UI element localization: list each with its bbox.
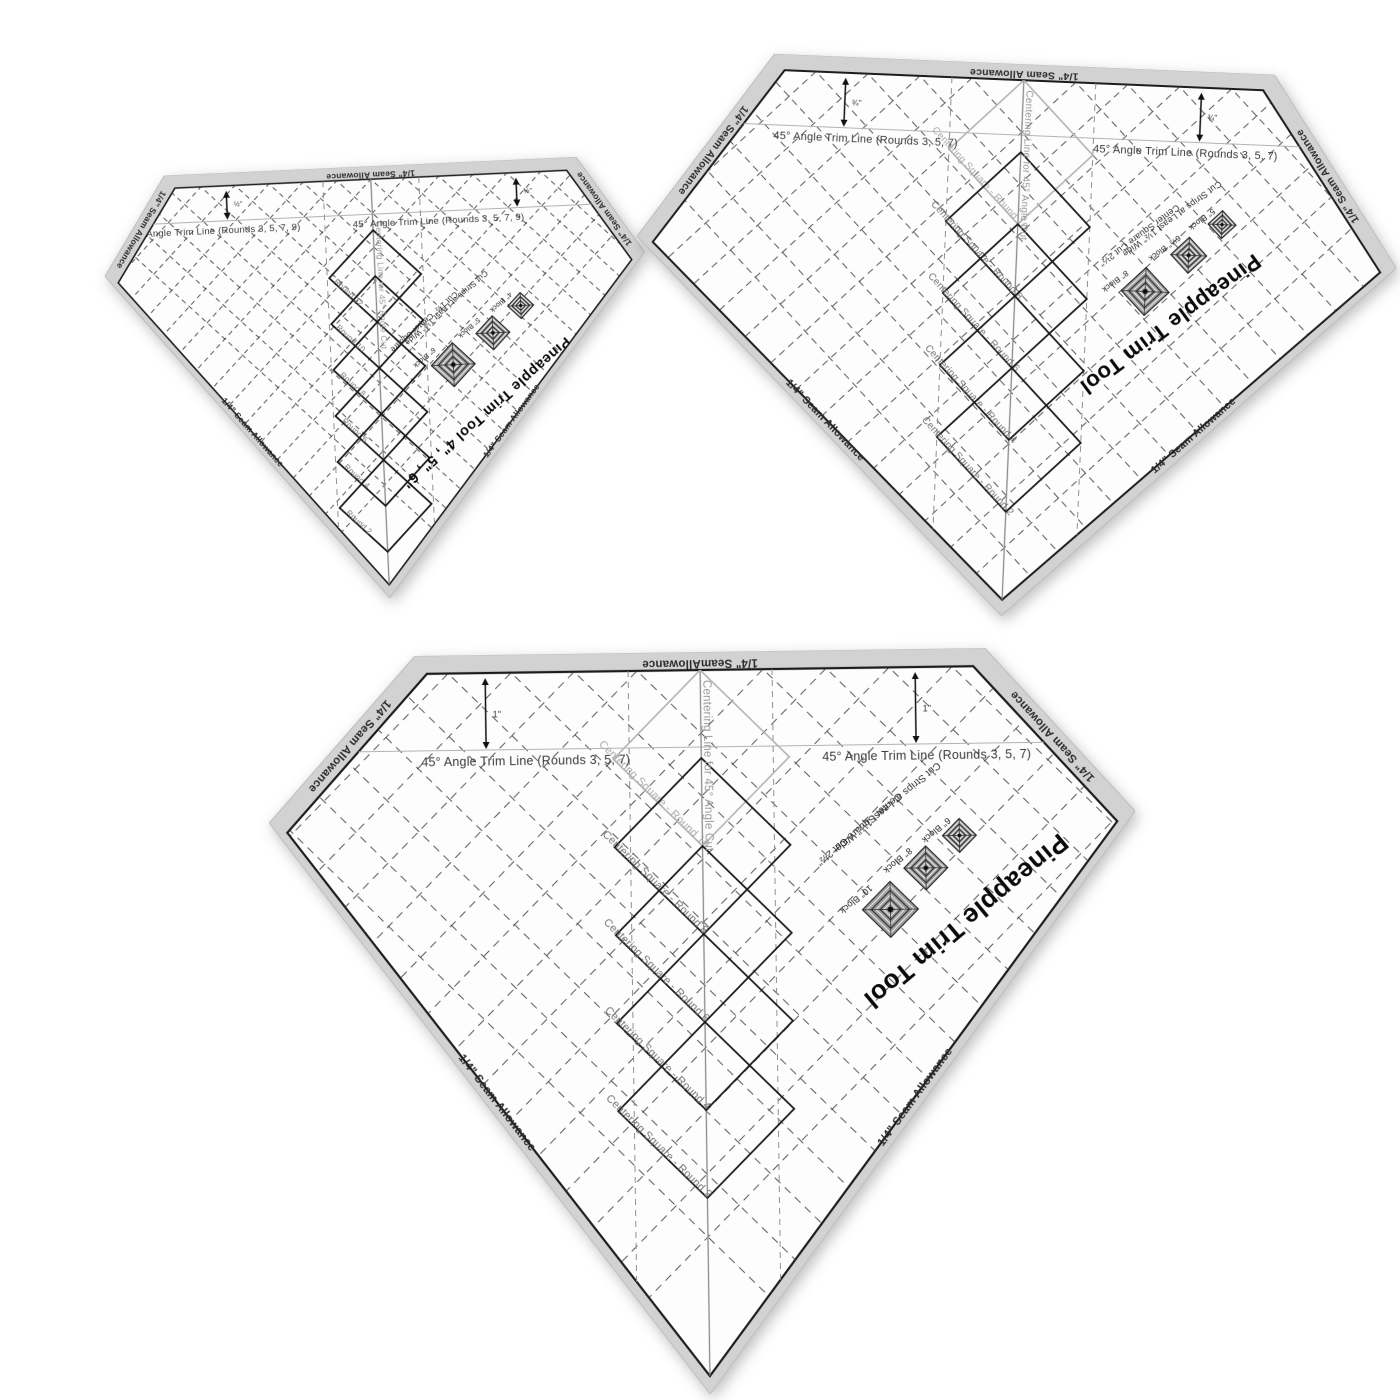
ruler-large-graphic: Centering Square - Round 10Centering Squ…: [267, 646, 1143, 1400]
trim-height-label: 1": [923, 704, 932, 714]
trim-height-label: 1": [493, 710, 502, 720]
trim-height-label: ¾": [852, 98, 862, 107]
trim-height-arrow: [915, 675, 916, 740]
trim-height-label: ¾": [1207, 113, 1217, 122]
angle-trim-line-label-right: 45° Angle Trim Line (Rounds 3, 5, 7): [822, 747, 1031, 764]
trim-height-label: ½": [523, 187, 532, 195]
product-photo: Round 12Round 10Round 8Round 6Round 4Rou…: [0, 0, 1400, 1400]
ruler-medium-graphic: Centering Square - Round 10Centering Squ…: [622, 48, 1400, 631]
seam-allowance-top: 1/4" SeamAllowance: [642, 656, 758, 670]
ruler-small: Round 12Round 10Round 8Round 6Round 4Rou…: [100, 154, 659, 610]
angle-trim-line-label-left: 45° Angle Trim Line (Rounds 3, 5, 7): [421, 753, 630, 770]
ruler-small-graphic: Round 12Round 10Round 8Round 6Round 4Rou…: [100, 154, 659, 610]
centering-line-label: Centering Line for 45° Angle Cut: [700, 680, 714, 852]
trim-height-label: ½": [234, 200, 243, 208]
ruler-medium: Centering Square - Round 10Centering Squ…: [622, 48, 1400, 631]
ruler-large: Centering Square - Round 10Centering Squ…: [267, 646, 1143, 1400]
trim-height-arrow: [485, 681, 486, 746]
